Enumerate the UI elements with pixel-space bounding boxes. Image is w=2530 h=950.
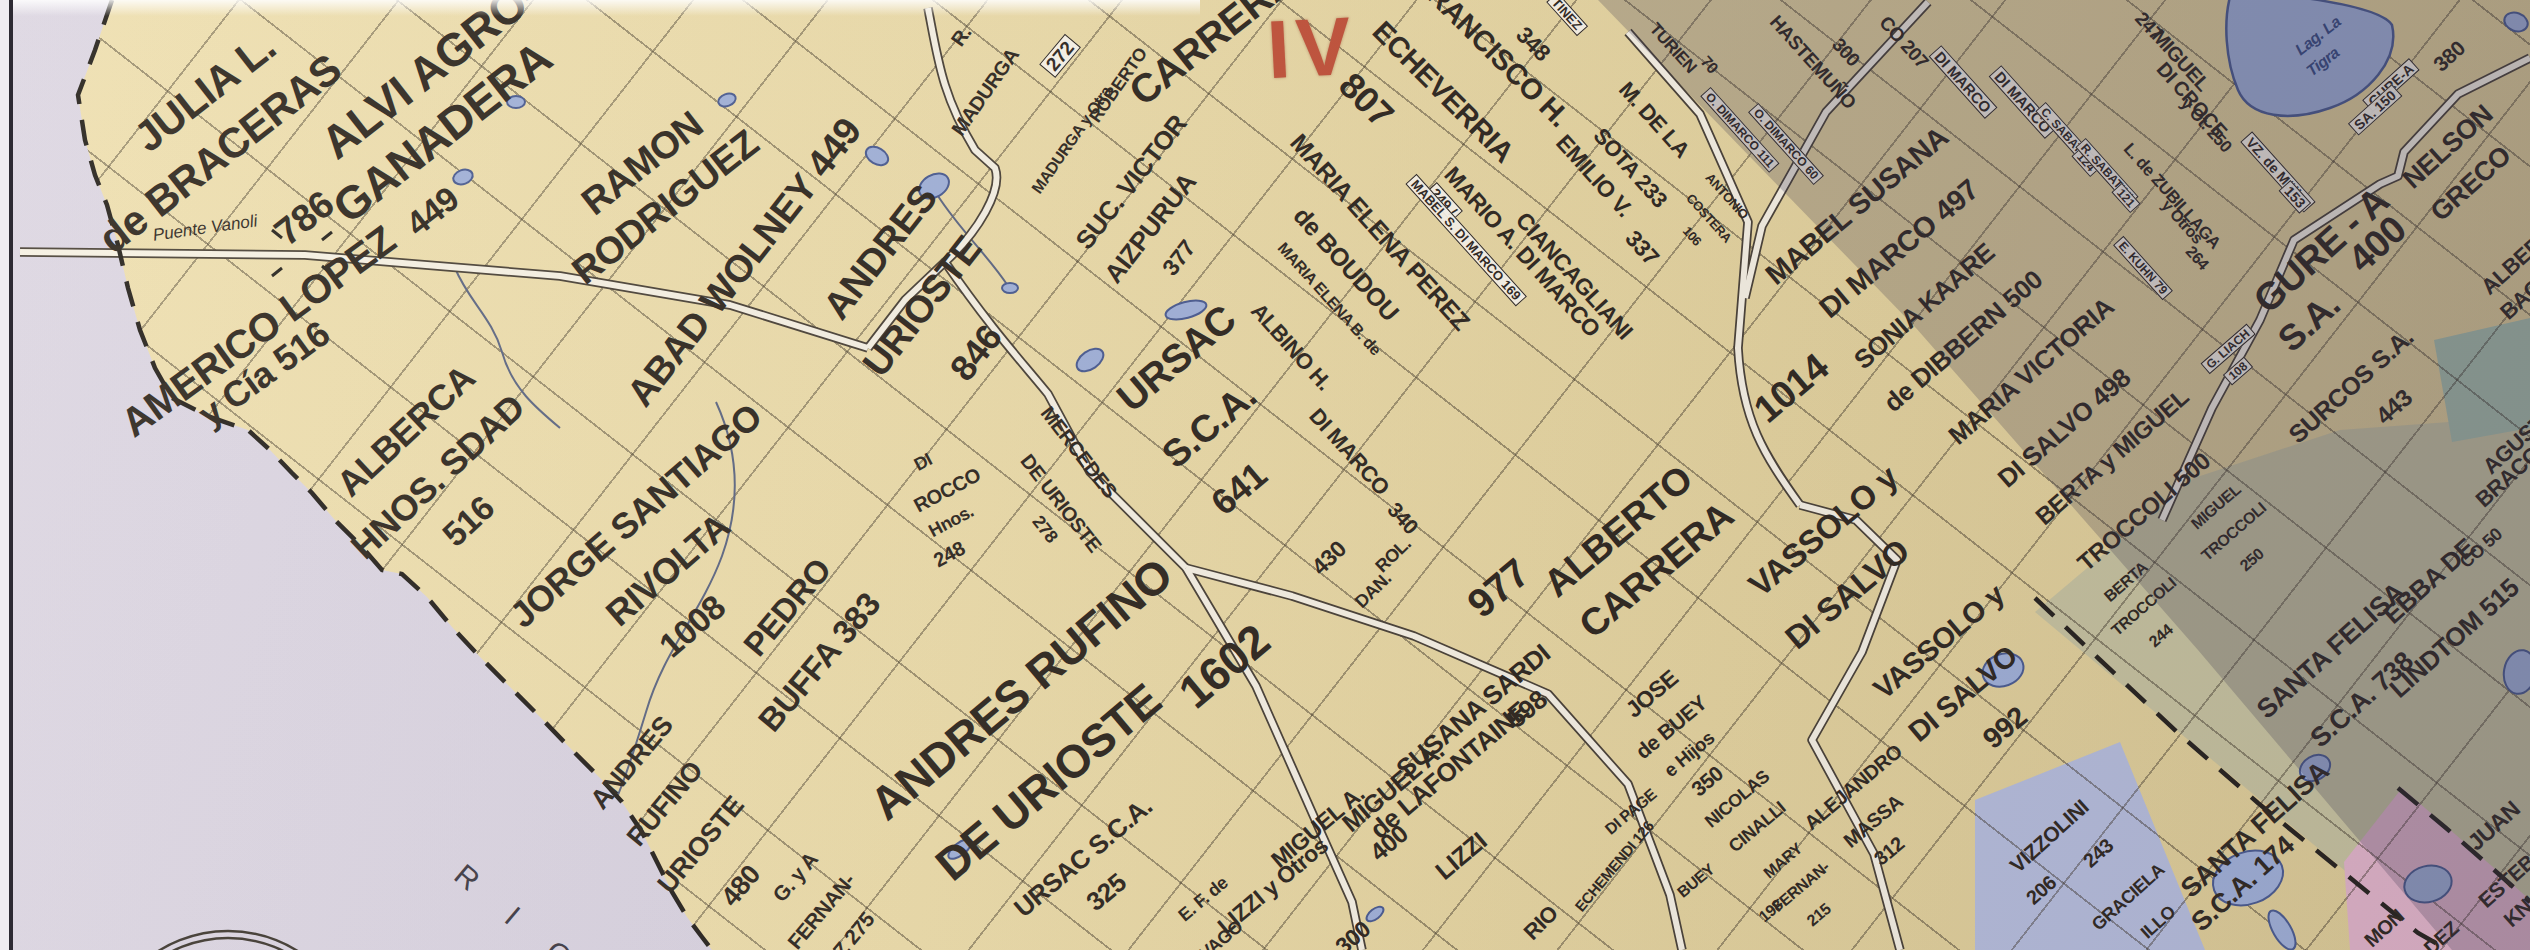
parcel-label: 641	[1205, 456, 1273, 521]
parcel-label: G. y A	[769, 848, 822, 905]
parcel-label: MARY	[1761, 841, 1805, 882]
parcel-label: 1602	[1171, 616, 1277, 716]
parcel-label: 977	[1460, 552, 1536, 625]
parcel-label: MADURGA y Otra	[1029, 84, 1115, 197]
parcel-label: 121	[2111, 183, 2140, 213]
parcel-label: SANTA FELISA	[2252, 578, 2409, 724]
parcel-label: 300	[1331, 917, 1374, 950]
parcel-label: MADURGA	[948, 45, 1022, 139]
parcel-label: AMERICO LOPEZ	[114, 219, 402, 443]
parcel-label: 1014	[1747, 347, 1835, 429]
cadastral-map-photo: JULIA L.de BRACERAS786Puente VanoliALVI …	[0, 0, 2530, 950]
parcel-label: 443	[2372, 385, 2417, 429]
parcel-label: 278	[1029, 512, 1061, 546]
parcel-label: 340	[1384, 499, 1422, 538]
parcel-label: 430	[1308, 537, 1351, 579]
parcel-label: 215	[1804, 901, 1834, 929]
parcel-label: 108	[2223, 357, 2253, 386]
sheet-code-overlay: IV	[1265, 0, 1359, 97]
parcel-label: MON	[2361, 905, 2408, 950]
parcel-label: 480	[717, 861, 766, 912]
parcel-label: ILLO	[2137, 902, 2178, 941]
parcel-label: 250	[2237, 546, 2267, 575]
parcel-label: 300	[1829, 34, 1863, 69]
parcel-label: 350	[1687, 762, 1726, 800]
parcel-label: 377	[1159, 236, 1200, 279]
parcel-label: 244	[2146, 622, 2176, 651]
parcel-label: DI MARCO	[1929, 45, 1998, 119]
parcel-label: 992	[1978, 702, 2033, 754]
parcel-labels-layer: JULIA L.de BRACERAS786Puente VanoliALVI …	[0, 0, 2530, 950]
parcel-label: TINEZ	[1546, 0, 1588, 36]
parcel-label: 380	[2430, 37, 2469, 75]
parcel-label: 248	[930, 538, 968, 571]
parcel-label: JUAN	[2464, 797, 2524, 855]
parcel-label: E. KUHN 79	[2113, 236, 2173, 300]
parcel-label: DI MARCO	[1989, 65, 2058, 139]
parcel-label: VIZZOLINI	[2006, 796, 2092, 877]
parcel-label: BUEY	[1675, 861, 1718, 901]
parcel-label: 272	[1039, 34, 1081, 78]
parcel-label: 243	[2079, 835, 2116, 871]
parcel-label: RIO	[1520, 902, 1562, 944]
parcel-label: DI MARCO	[1305, 405, 1393, 499]
map-sheet-margin	[0, 0, 9, 950]
parcel-label: DI MARCO 497	[1814, 175, 1984, 324]
parcel-label: 70	[1697, 53, 1720, 76]
parcel-label: 106	[1680, 224, 1703, 248]
parcel-label: DEZ	[2420, 918, 2462, 950]
parcel-label: TURIEN	[1647, 20, 1700, 76]
parcel-label: LIZZI	[1431, 828, 1491, 884]
parcel-label: 337	[1621, 227, 1663, 270]
parcel-label: 516	[436, 490, 500, 553]
parcel-label: ALBINO H.	[1247, 300, 1336, 395]
parcel-label: 846	[944, 319, 1008, 387]
parcel-label: 312	[1870, 833, 1907, 869]
parcel-label: 325	[1082, 869, 1131, 916]
parcel-label: R.	[947, 22, 974, 49]
parcel-label: DI	[911, 450, 934, 474]
parcel-label: DAN.	[1352, 569, 1395, 611]
map-neatline	[9, 0, 13, 950]
parcel-label: 1008	[653, 589, 731, 663]
parcel-label: CO 207	[1876, 12, 1932, 71]
parcel-label: 206	[2022, 872, 2059, 908]
